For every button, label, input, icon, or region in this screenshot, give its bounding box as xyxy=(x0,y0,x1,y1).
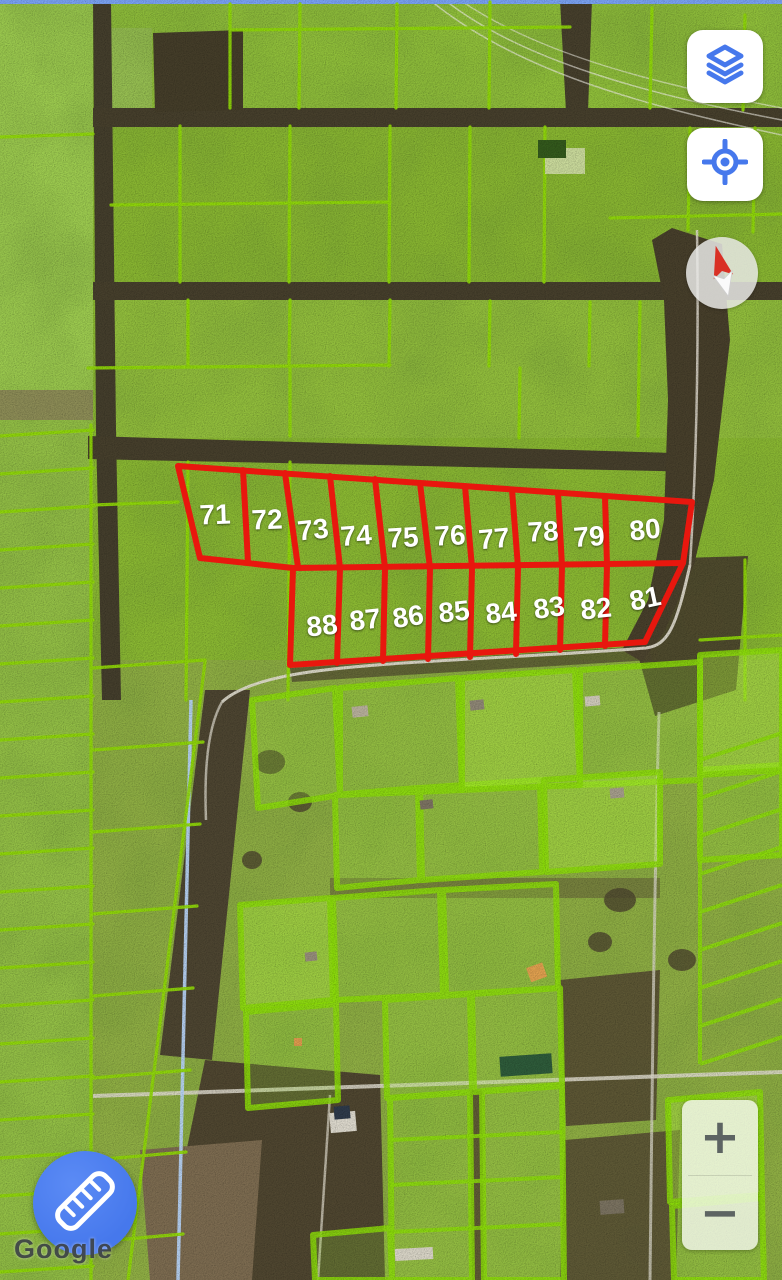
parcel-number: 76 xyxy=(434,519,467,552)
parcel-number: 77 xyxy=(477,522,511,556)
layers-icon xyxy=(703,42,747,91)
zoom-in-button[interactable]: + xyxy=(682,1100,758,1175)
compass-needle-icon xyxy=(686,235,758,312)
google-watermark: Google xyxy=(14,1234,113,1265)
parcel-number: 78 xyxy=(527,515,560,548)
parcel-number: 74 xyxy=(339,519,373,552)
zoom-out-button[interactable]: − xyxy=(682,1176,758,1251)
my-location-button[interactable] xyxy=(687,128,763,201)
parcel-number: 86 xyxy=(390,599,425,634)
parcel-number: 80 xyxy=(628,512,662,546)
compass-button[interactable] xyxy=(686,237,758,309)
noise-texture xyxy=(0,0,782,1280)
parcel-number: 82 xyxy=(579,591,613,625)
parcel-number: 83 xyxy=(531,590,566,625)
zoom-control: + − xyxy=(682,1100,758,1250)
my-location-icon xyxy=(702,139,748,190)
parcel-number: 87 xyxy=(348,602,382,636)
parcel-number: 71 xyxy=(199,498,231,530)
layers-button[interactable] xyxy=(687,30,763,103)
parcel-number: 84 xyxy=(484,595,519,629)
parcel-number: 79 xyxy=(572,520,605,553)
ruler-icon xyxy=(47,1163,123,1244)
parcel-number: 81 xyxy=(627,580,664,617)
parcel-number: 75 xyxy=(387,521,420,554)
parcel-number: 72 xyxy=(251,503,283,535)
parcel-number: 73 xyxy=(296,512,330,546)
parcel-number: 85 xyxy=(437,594,471,628)
parcel-number: 88 xyxy=(305,608,339,642)
map-app: 71 72 73 74 75 76 77 78 79 80 88 87 86 8… xyxy=(0,0,782,1280)
satellite-map-canvas[interactable]: 71 72 73 74 75 76 77 78 79 80 88 87 86 8… xyxy=(0,0,782,1280)
